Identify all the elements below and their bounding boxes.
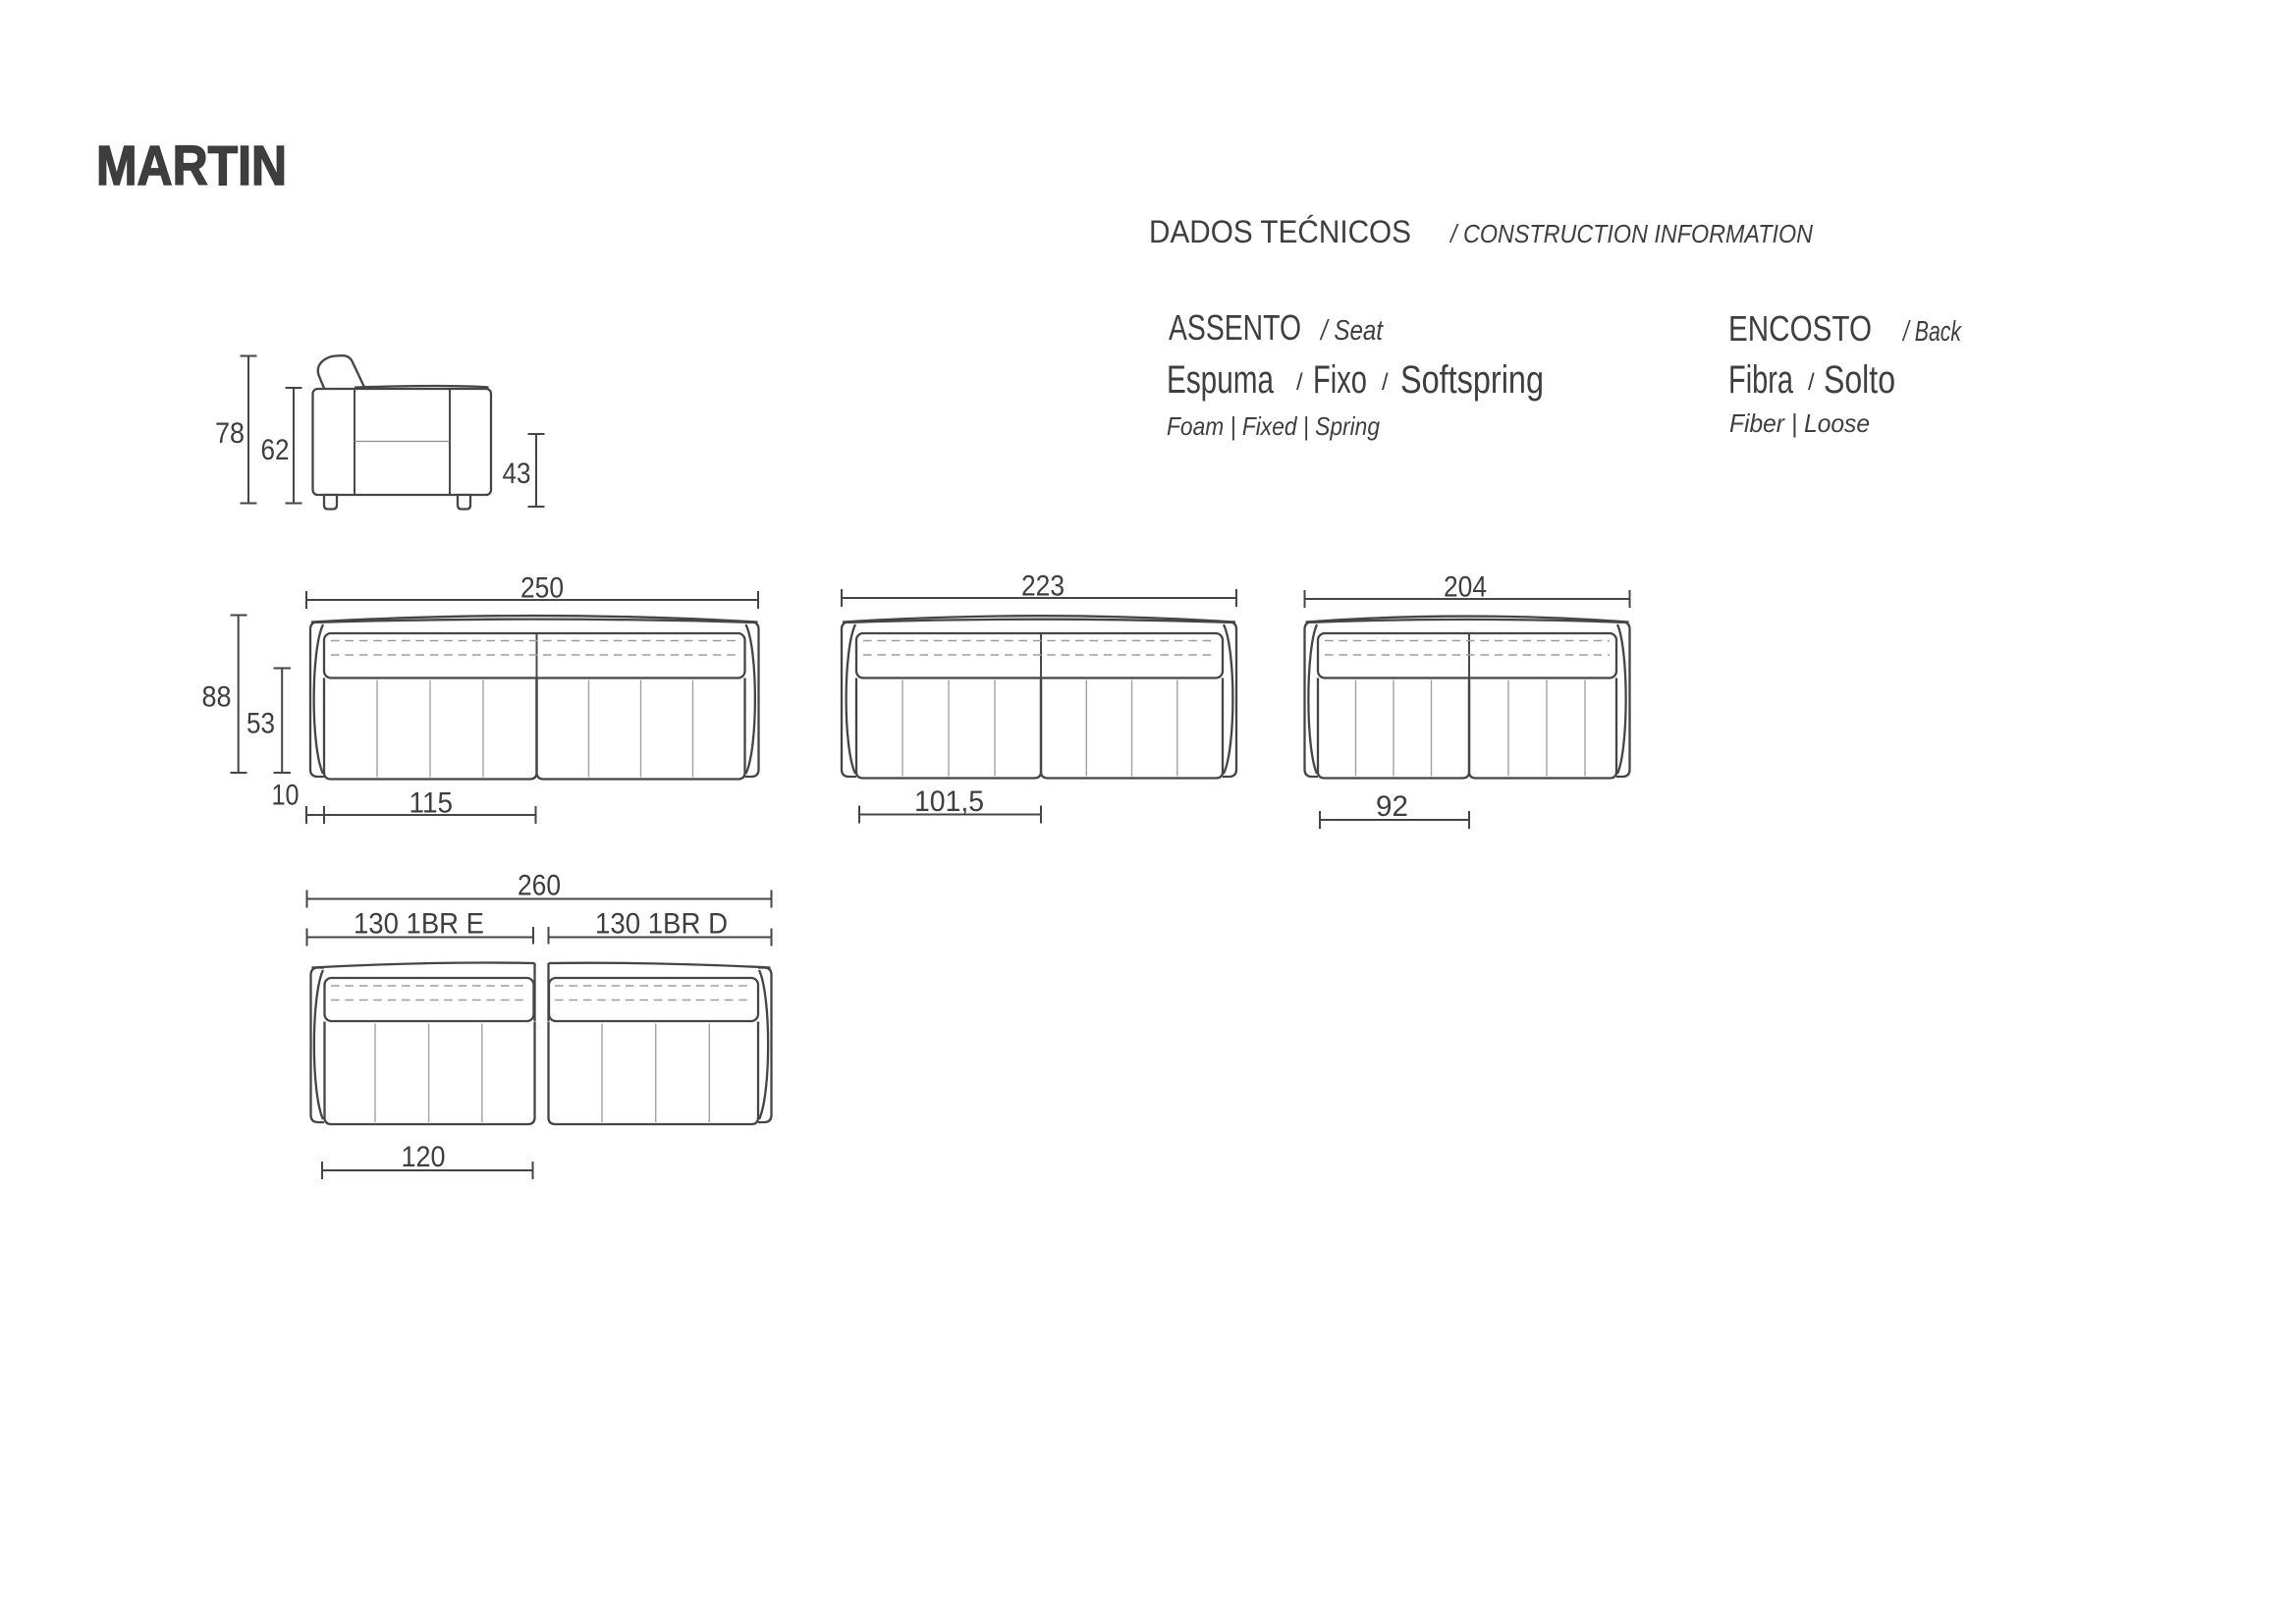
svg-text:Fiber | Loose: Fiber | Loose [1729, 408, 1870, 438]
svg-text:/: / [1808, 369, 1815, 396]
svg-text:250: 250 [520, 572, 564, 605]
svg-text:DADOS TEĆNICOS: DADOS TEĆNICOS [1149, 214, 1411, 249]
svg-text:ENCOSTO: ENCOSTO [1728, 308, 1872, 349]
svg-text:260: 260 [518, 870, 561, 902]
svg-text:/ CONSTRUCTION INFORMATION: / CONSTRUCTION INFORMATION [1449, 219, 1813, 248]
svg-text:Solto: Solto [1824, 358, 1895, 402]
svg-text:MARTIN: MARTIN [96, 135, 287, 197]
svg-text:/: / [1382, 369, 1389, 396]
svg-text:10: 10 [272, 780, 300, 812]
svg-text:115: 115 [410, 787, 454, 820]
svg-text:130 1BR D: 130 1BR D [595, 908, 728, 941]
svg-text:/ Seat: / Seat [1319, 315, 1384, 347]
svg-text:223: 223 [1021, 570, 1065, 603]
svg-text:120: 120 [402, 1141, 446, 1173]
svg-text:92: 92 [1376, 790, 1408, 823]
svg-text:88: 88 [202, 681, 232, 714]
svg-text:Foam | Fixed | Spring: Foam | Fixed | Spring [1167, 411, 1380, 441]
svg-text:Espuma: Espuma [1167, 358, 1275, 402]
svg-text:78: 78 [215, 417, 245, 450]
svg-text:53: 53 [246, 708, 275, 740]
svg-text:130 1BR E: 130 1BR E [354, 908, 484, 941]
svg-text:204: 204 [1444, 571, 1487, 604]
svg-text:/ Back: / Back [1902, 316, 1963, 348]
svg-text:Softspring: Softspring [1400, 358, 1544, 402]
svg-text:43: 43 [503, 458, 531, 490]
svg-text:/: / [1296, 369, 1303, 396]
svg-text:101,5: 101,5 [914, 785, 984, 818]
svg-text:Fixo: Fixo [1313, 358, 1367, 402]
svg-text:ASSENTO: ASSENTO [1169, 307, 1301, 348]
svg-text:Fibra: Fibra [1728, 358, 1794, 402]
svg-text:62: 62 [261, 434, 290, 466]
